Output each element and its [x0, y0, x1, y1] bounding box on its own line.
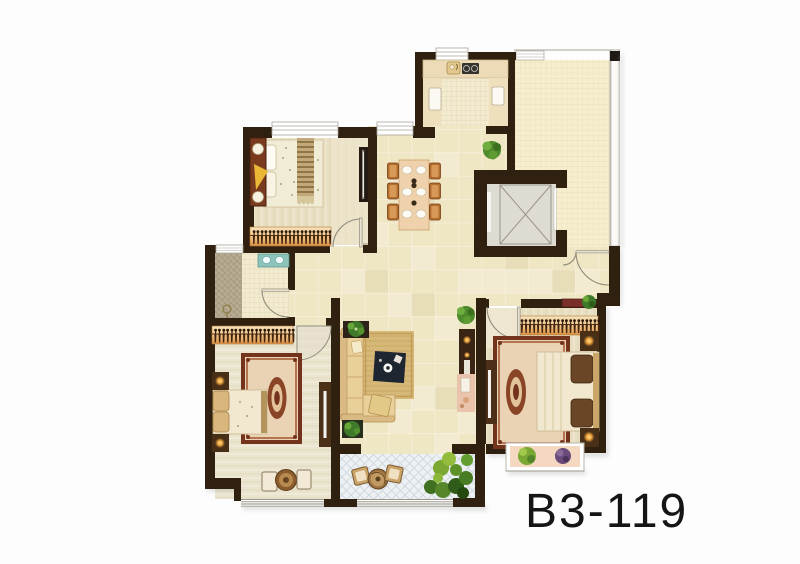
svg-text:B3-119: B3-119	[525, 485, 688, 538]
